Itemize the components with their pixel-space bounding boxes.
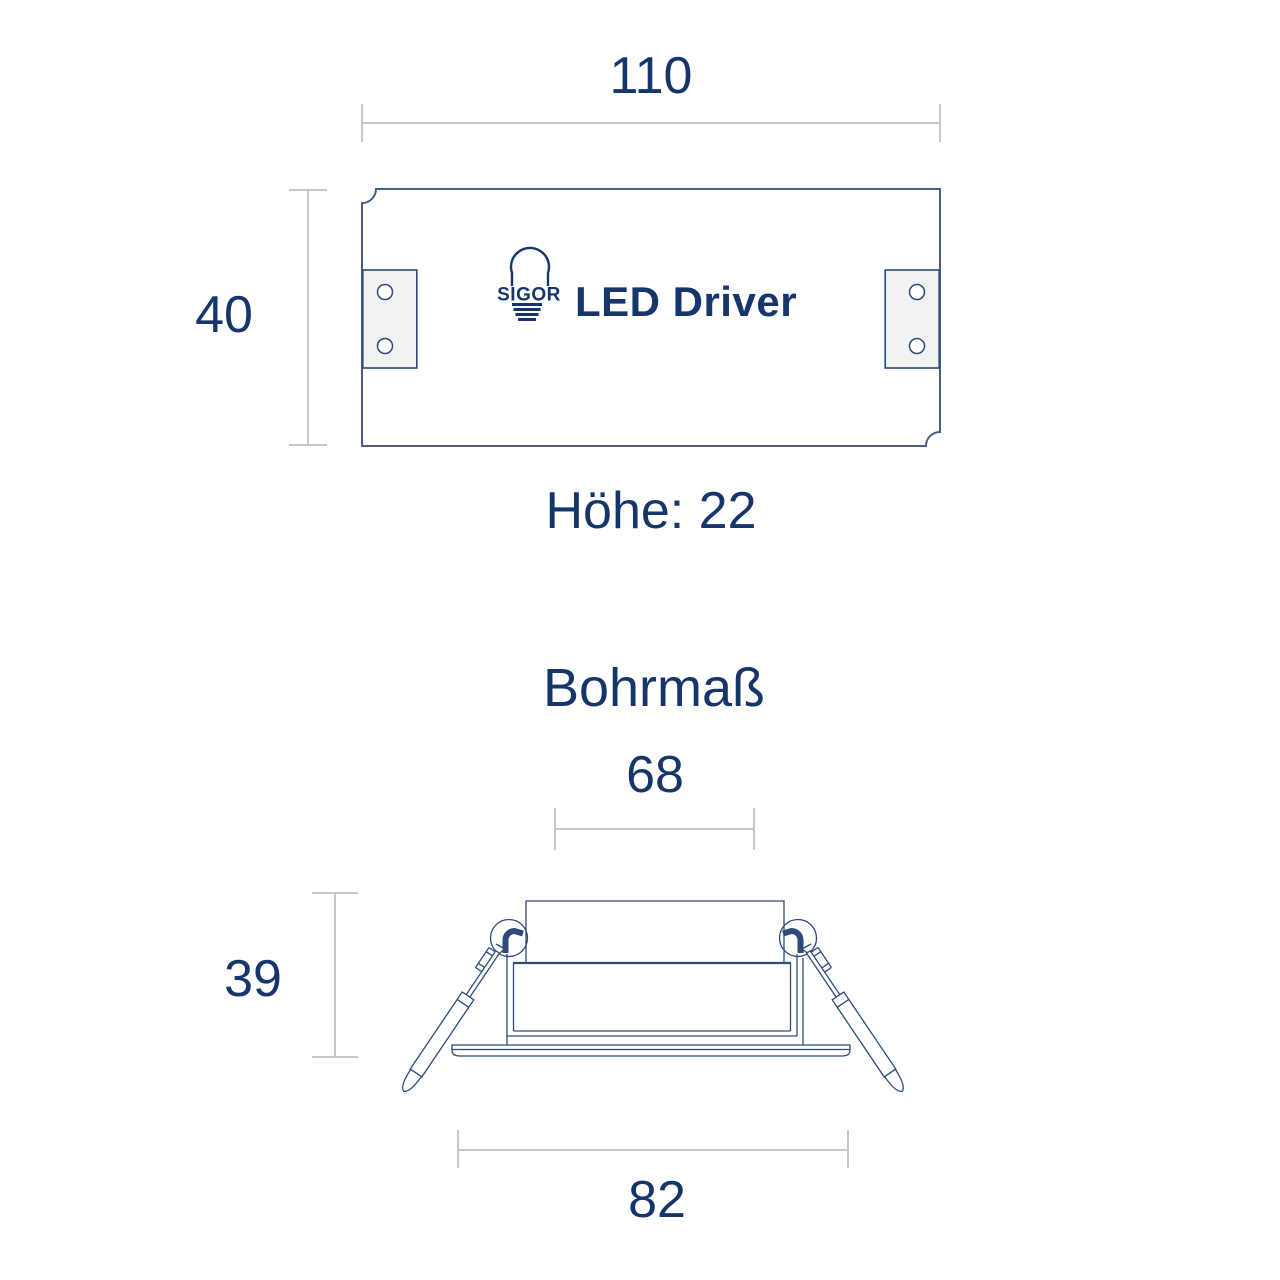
screw-hole [378, 285, 393, 300]
pivot-hook-right [783, 931, 801, 953]
screw-hole [378, 339, 393, 354]
bohrmass-title: Bohrmaß [543, 661, 765, 715]
flange-dimension-label: 82 [628, 1174, 686, 1226]
dimension-line-flange-82 [458, 1130, 848, 1168]
screw-hole [910, 285, 925, 300]
dimension-line-height-40 [289, 190, 327, 445]
led-driver-label: LED Driver [575, 281, 797, 323]
dimension-line-width-110 [362, 104, 940, 142]
pivot-hook-left [506, 931, 524, 953]
spring-clamp-arm-right [803, 948, 909, 1095]
dimension-line-bore-68 [555, 808, 754, 850]
bore-dimension-label: 68 [626, 749, 684, 801]
technical-drawing-page: 110 40 SIGOR LED Driver Höhe: 22 Bohrmaß… [0, 0, 1280, 1280]
housing-top-can [526, 901, 784, 963]
drawing-canvas [0, 0, 1280, 1280]
screw-hole [910, 339, 925, 354]
height-dimension-label: 40 [195, 289, 253, 341]
housing-bottom [507, 1031, 797, 1036]
dimension-line-depth-39 [312, 893, 358, 1057]
depth-dimension-label: 39 [224, 953, 282, 1005]
mounting-tab-right [885, 270, 939, 368]
trim-flange [452, 1045, 850, 1056]
led-driver-top-view [289, 104, 940, 446]
spring-clamp-arm-left [398, 948, 504, 1095]
sigor-logo-text: SIGOR [497, 286, 561, 305]
mounting-tab-left [363, 270, 417, 368]
width-dimension-label: 110 [610, 50, 693, 102]
recessed-spot-cross-section [312, 808, 908, 1168]
hoehe-depth-label: Höhe: 22 [545, 485, 756, 537]
